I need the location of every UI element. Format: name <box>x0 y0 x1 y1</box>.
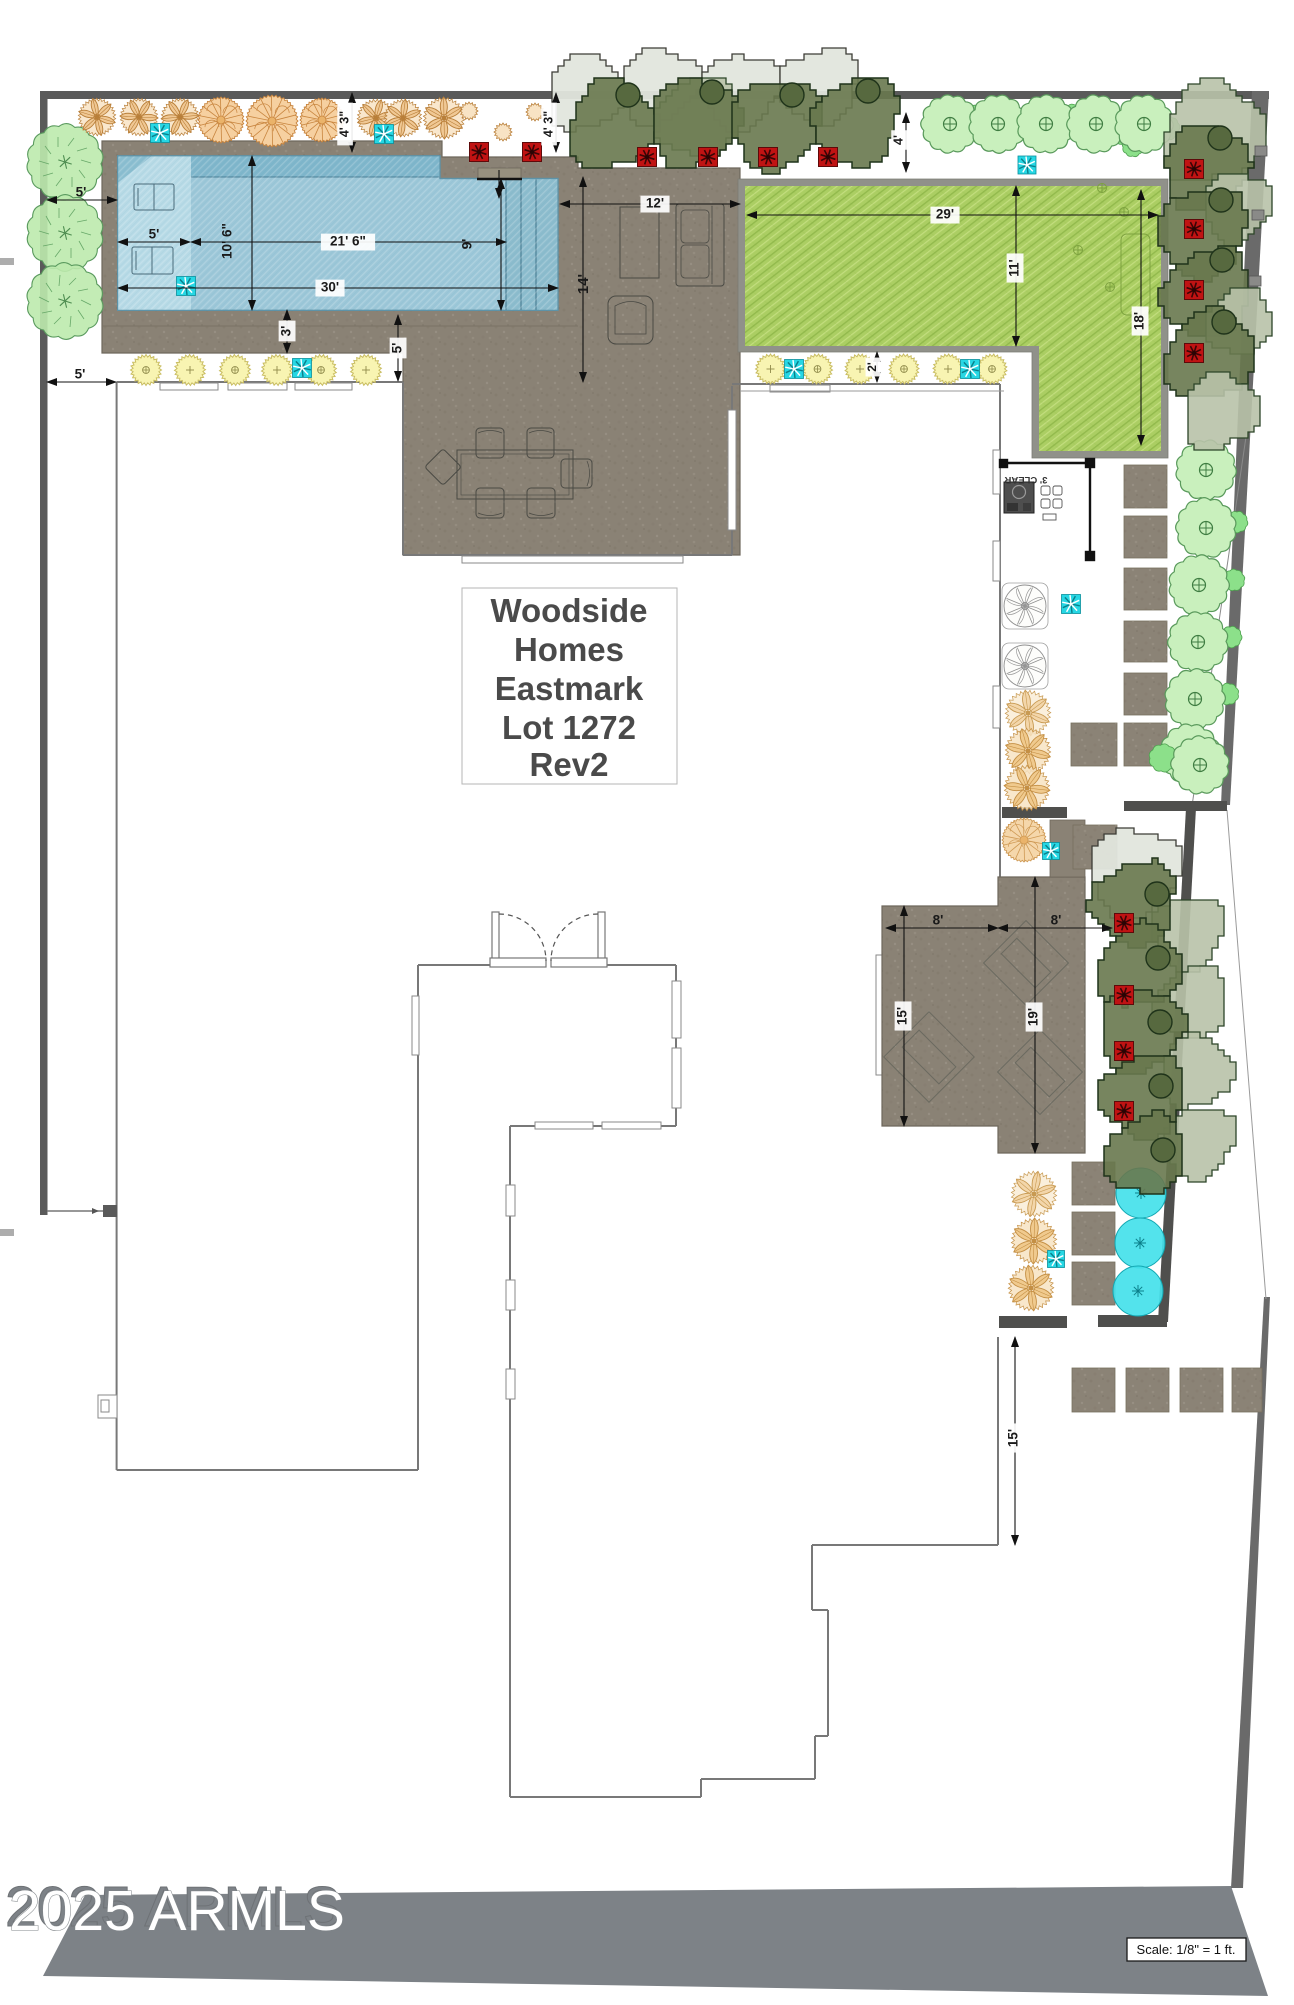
svg-text:5': 5' <box>76 185 87 200</box>
svg-text:4' 3": 4' 3" <box>541 111 555 137</box>
svg-text:15': 15' <box>1006 1429 1021 1447</box>
svg-text:Scale: 1/8" = 1 ft.: Scale: 1/8" = 1 ft. <box>1137 1942 1236 1957</box>
svg-text:10' 6": 10' 6" <box>220 223 235 259</box>
svg-text:30': 30' <box>321 280 339 295</box>
svg-text:5': 5' <box>149 227 160 242</box>
svg-text:12': 12' <box>646 196 664 211</box>
svg-text:29': 29' <box>936 207 954 222</box>
svg-text:4' 3": 4' 3" <box>337 111 351 137</box>
svg-text:5': 5' <box>390 343 405 354</box>
svg-text:9': 9' <box>460 239 475 250</box>
svg-text:3': 3' <box>279 326 294 337</box>
svg-text:3' CLEAR: 3' CLEAR <box>1004 474 1047 485</box>
svg-text:21' 6": 21' 6" <box>330 234 366 249</box>
svg-text:2025 ARMLS: 2025 ARMLS <box>9 1879 345 1943</box>
svg-text:Woodside: Woodside <box>490 592 647 629</box>
svg-text:8': 8' <box>933 913 944 928</box>
svg-text:8': 8' <box>1051 913 1062 928</box>
svg-text:4': 4' <box>891 135 905 145</box>
svg-text:14': 14' <box>575 274 592 294</box>
svg-text:11': 11' <box>1007 259 1022 276</box>
svg-text:5': 5' <box>75 367 86 382</box>
svg-text:Homes: Homes <box>514 631 624 668</box>
svg-text:19': 19' <box>1026 1008 1041 1026</box>
svg-text:2': 2' <box>865 362 879 372</box>
svg-text:18': 18' <box>1132 312 1147 330</box>
svg-text:Lot 1272: Lot 1272 <box>502 709 636 746</box>
svg-text:15': 15' <box>895 1007 910 1025</box>
svg-text:Eastmark: Eastmark <box>495 670 644 707</box>
svg-text:Rev2: Rev2 <box>530 746 609 783</box>
